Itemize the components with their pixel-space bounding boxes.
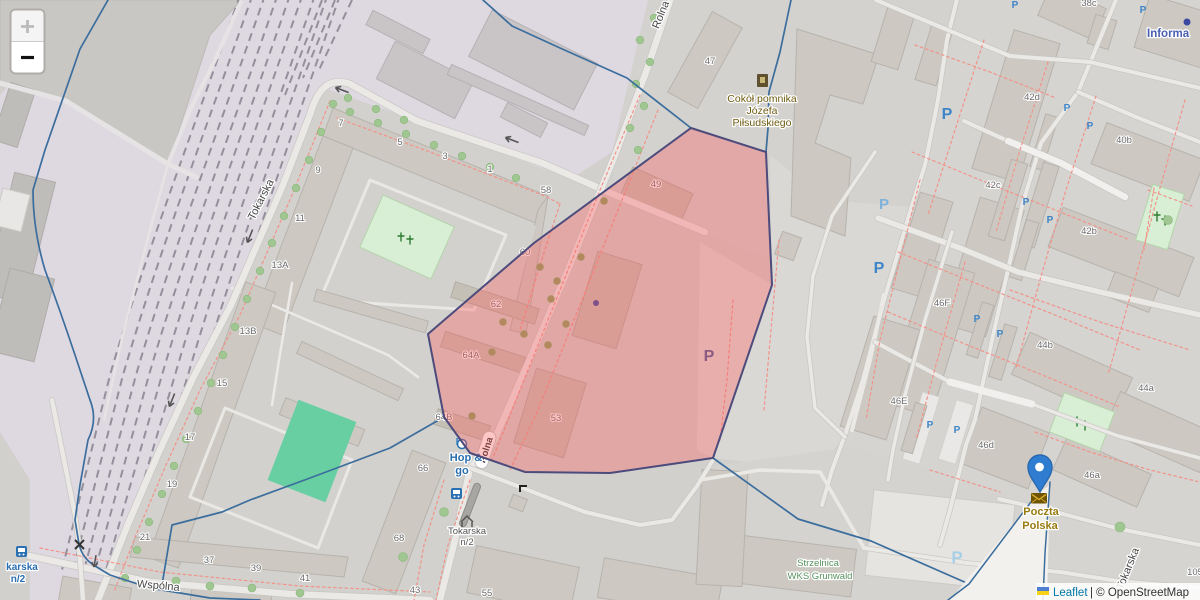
svg-text:Leaflet: Leaflet (1053, 587, 1088, 599)
svg-text:Piłsudskiego: Piłsudskiego (733, 117, 792, 129)
svg-text:P: P (1023, 197, 1030, 208)
svg-text:58: 58 (541, 185, 552, 196)
svg-text:Informa: Informa (1147, 28, 1190, 40)
svg-text:Polska: Polska (1022, 520, 1058, 532)
svg-text:42d: 42d (1024, 92, 1040, 103)
svg-text:P: P (1064, 103, 1071, 114)
svg-text:3: 3 (442, 151, 447, 162)
svg-text:karska: karska (6, 562, 38, 573)
svg-text:46a: 46a (1084, 470, 1101, 481)
svg-text:P: P (1140, 5, 1147, 16)
svg-text:68: 68 (394, 533, 405, 544)
svg-text:66: 66 (418, 463, 429, 474)
svg-text:1: 1 (487, 164, 492, 175)
svg-text:Józefa: Józefa (747, 105, 778, 117)
svg-text:P: P (954, 425, 961, 436)
svg-text:P: P (974, 314, 981, 325)
svg-text:105: 105 (1187, 567, 1200, 578)
svg-text:P: P (997, 329, 1004, 340)
svg-text:19: 19 (167, 479, 178, 490)
svg-text:47: 47 (705, 56, 716, 67)
svg-text:42c: 42c (985, 180, 1001, 191)
svg-text:P: P (1047, 215, 1054, 226)
svg-text:44a: 44a (1138, 383, 1155, 394)
svg-text:11: 11 (295, 213, 305, 224)
svg-text:P: P (879, 196, 889, 213)
svg-text:P: P (942, 106, 953, 123)
svg-text:15: 15 (217, 378, 228, 389)
svg-text:P: P (1012, 0, 1019, 11)
svg-text:43: 43 (410, 585, 421, 596)
svg-text:44b: 44b (1037, 340, 1053, 351)
svg-text:9: 9 (315, 165, 320, 176)
svg-text:42b: 42b (1081, 226, 1097, 237)
svg-text:P: P (951, 548, 962, 567)
svg-text:Strzelnica: Strzelnica (797, 558, 839, 569)
svg-text:13B: 13B (240, 326, 257, 337)
svg-text:P: P (927, 420, 934, 431)
svg-text:go: go (455, 465, 469, 477)
svg-text:46F: 46F (934, 298, 951, 309)
svg-text:39: 39 (251, 563, 262, 574)
svg-text:n/2: n/2 (460, 537, 473, 548)
svg-text:38c: 38c (1081, 0, 1097, 9)
svg-text:46E: 46E (891, 396, 908, 407)
svg-text:37: 37 (204, 555, 215, 566)
svg-text:Tokarska: Tokarska (448, 526, 487, 537)
svg-text:Cokół pomnika: Cokół pomnika (727, 93, 797, 105)
svg-text:5: 5 (397, 137, 402, 148)
svg-text:P: P (1087, 121, 1094, 132)
svg-text:46d: 46d (978, 440, 994, 451)
svg-text:21: 21 (140, 532, 151, 543)
svg-text:7: 7 (338, 118, 343, 129)
svg-text:40b: 40b (1116, 135, 1132, 146)
svg-text:WKS Grunwald: WKS Grunwald (788, 571, 853, 582)
svg-text:17: 17 (185, 432, 196, 443)
svg-text:41: 41 (300, 573, 311, 584)
svg-text:| © OpenStreetMap: | © OpenStreetMap (1090, 587, 1189, 599)
svg-text:55: 55 (482, 588, 493, 599)
svg-text:Poczta: Poczta (1023, 506, 1059, 518)
svg-text:13A: 13A (272, 260, 290, 271)
svg-text:n/2: n/2 (11, 574, 26, 585)
svg-text:P: P (874, 260, 885, 277)
